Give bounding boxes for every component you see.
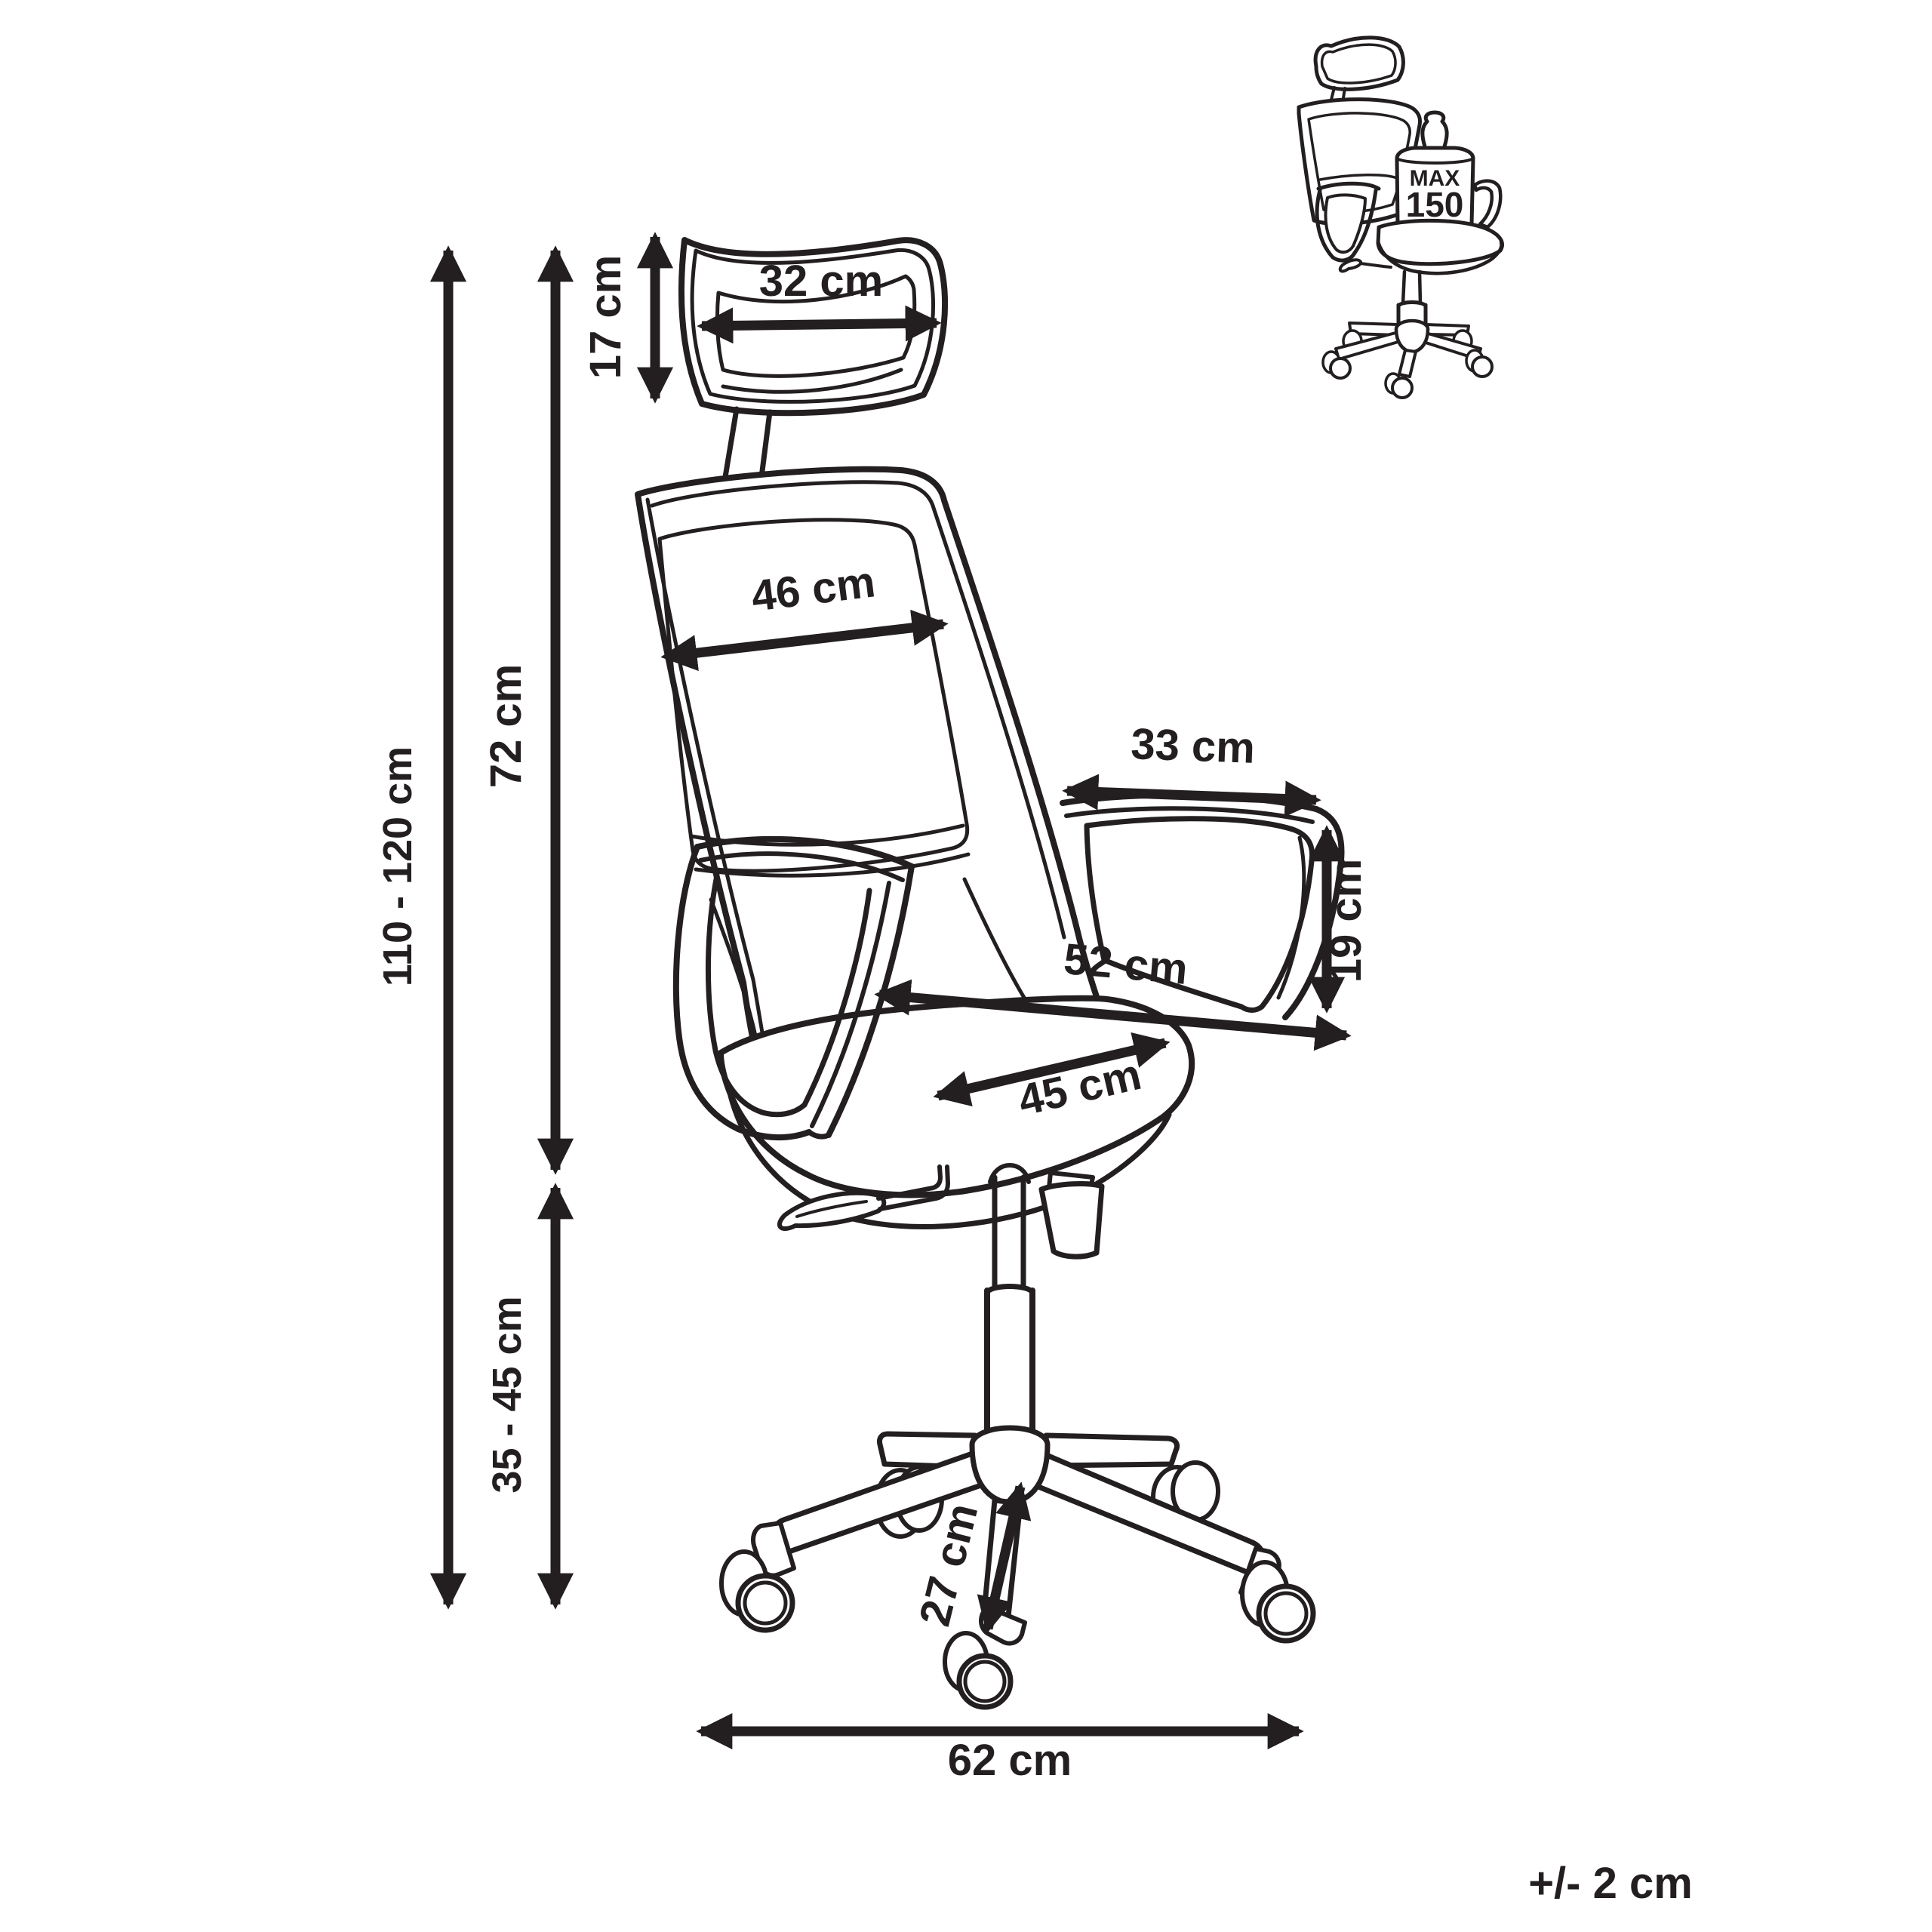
small-base [1323,321,1492,398]
small-gas-lift [1403,272,1420,303]
tolerance-note: +/- 2 cm [1528,1859,1693,1908]
dim-label-armrest-height: 19 cm [1321,859,1371,983]
diagram-canvas: MAX 150 kg 110 - 1 [0,0,1932,1932]
dim-label-backrest-height: 72 cm [481,664,531,788]
small-caster-left [1331,358,1350,378]
dim-label-headrest-height: 17 cm [581,255,630,379]
dim-label-base-width: 62 cm [948,1736,1072,1785]
small-hub [1396,329,1428,352]
weight-neck [1423,112,1447,146]
gas-lift-piston [995,1177,1023,1287]
dimension-diagram: MAX 150 kg 110 - 1 [0,0,1932,1932]
headrest-stem [725,409,770,477]
dim-arrow-headrest-width [702,323,937,326]
gas-lift-sleeve-cap [987,1287,1032,1293]
dim-label-overall-height: 110 - 120 cm [375,746,420,986]
base-hub [972,1444,1048,1503]
gas-lift [987,1165,1032,1434]
small-caster-front [1392,378,1412,398]
small-seat [1378,220,1502,263]
caster-left [721,1523,794,1630]
base-assembly [721,1428,1313,1707]
dim-label-seat-height: 35 - 45 cm [485,1296,530,1493]
tilt-box [1041,1184,1102,1257]
dim-label-armrest-length: 33 cm [1130,719,1256,773]
small-lever-rod [1361,263,1391,267]
gas-lift-sleeve [987,1291,1032,1434]
small-leg-front [1399,350,1416,377]
small-caster-right [1472,357,1492,377]
weight-limit-chair-drawing: MAX 150 kg [1299,38,1502,398]
dim-label-headrest-width: 32 cm [759,257,883,306]
base-leg-right [1038,1454,1263,1576]
caster-right [1241,1549,1313,1641]
small-right-armrest [1475,181,1500,227]
main-chair-drawing [638,240,1342,1707]
